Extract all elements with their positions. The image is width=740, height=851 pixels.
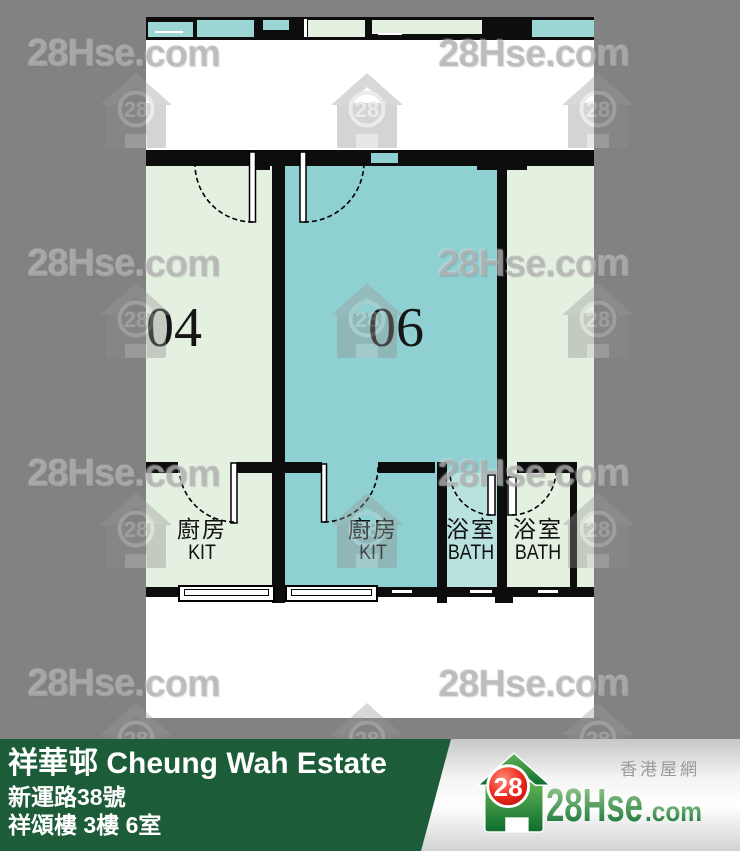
wall-kitchen — [285, 462, 322, 473]
window-kitchen-06 — [285, 585, 378, 602]
wall-gap — [304, 19, 307, 37]
kitchen-label-en: KIT — [339, 542, 407, 564]
room-fragment — [263, 20, 289, 30]
wall-kitchen — [237, 462, 272, 473]
room-fragment — [197, 20, 254, 37]
brand-badge-28: 28 — [494, 772, 523, 802]
bath-label-en: BATH — [446, 542, 497, 564]
bath-label-2: 浴室 BATH — [508, 517, 568, 564]
brand-wordmark: 28Hse .com — [546, 781, 706, 829]
estate-title: 祥華邨 Cheung Wah Estate — [8, 745, 451, 783]
bath-label-zh: 浴室 — [441, 517, 501, 542]
wall-kitchen — [378, 462, 435, 473]
footer-bar: 祥華邨 Cheung Wah Estate 新運路38號 祥頌樓 3樓 6室 香… — [0, 739, 740, 851]
window-slit — [470, 590, 492, 593]
wall-bath-right — [570, 462, 577, 597]
watermark-badge: 28 — [124, 307, 148, 332]
window-kitchen-04 — [178, 585, 275, 602]
brand-tld-text: .com — [645, 796, 702, 827]
brand-house-icon: 28 — [478, 751, 550, 835]
estate-address: 新運路38號 — [8, 783, 451, 812]
unit-number-04: 04 — [146, 300, 202, 356]
wall-notch — [255, 166, 270, 170]
wall-bath-top — [517, 462, 570, 473]
room-fragment — [308, 20, 365, 37]
wall-04-06 — [272, 150, 285, 603]
site-name-chinese: 香港屋網 — [620, 755, 700, 780]
floor-plan: 04 06 廚房 KIT 廚房 KIT 浴室 BATH 浴室 BATH — [146, 17, 594, 718]
kitchen-label-06: 廚房 KIT — [333, 517, 413, 564]
window-line — [155, 31, 183, 33]
window-slit — [392, 590, 412, 593]
wall-opening — [371, 153, 398, 163]
watermark-badge: 28 — [124, 517, 148, 542]
watermark-badge: 28 — [124, 97, 148, 122]
bath-label-en: BATH — [513, 542, 564, 564]
room-fragment — [532, 20, 594, 37]
kitchen-label-zh: 廚房 — [162, 517, 242, 542]
bath-label-1: 浴室 BATH — [441, 517, 501, 564]
wall-chunk — [495, 587, 513, 603]
brand-name-text: 28Hse — [546, 781, 643, 829]
kitchen-label-en: KIT — [168, 542, 236, 564]
room-fragment — [148, 22, 193, 37]
kitchen-label-zh: 廚房 — [333, 517, 413, 542]
estate-flat: 祥頌樓 3樓 6室 — [8, 811, 451, 840]
kitchen-label-04: 廚房 KIT — [162, 517, 242, 564]
room-fragment — [372, 20, 482, 34]
wall-top — [146, 150, 594, 166]
bath-label-zh: 浴室 — [508, 517, 568, 542]
estate-info-panel: 祥華邨 Cheung Wah Estate 新運路38號 祥頌樓 3樓 6室 — [0, 739, 451, 851]
window-slit — [538, 590, 558, 593]
unit-number-06: 06 — [368, 300, 424, 356]
wall-kitchen — [146, 462, 178, 473]
window-line — [378, 33, 402, 35]
